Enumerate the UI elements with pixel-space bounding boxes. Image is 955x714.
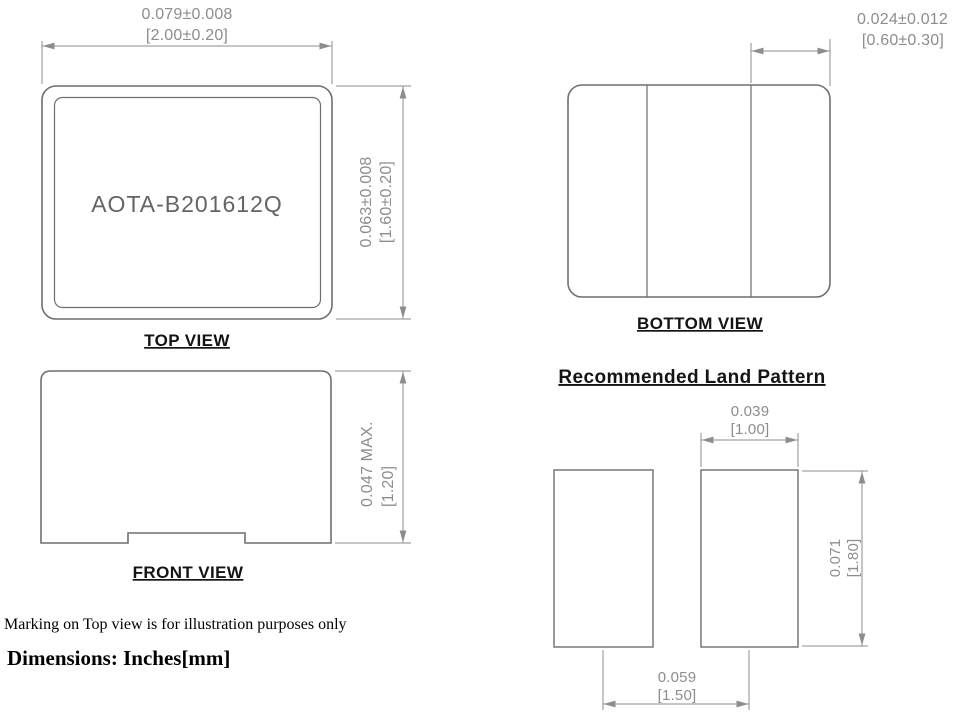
top-view: AOTA-B201612Q TOP VIEW 0.079±0.008 [2.00…	[42, 6, 411, 350]
top-width-dim-mm: [2.00±0.20]	[146, 27, 228, 44]
land-pad-right	[701, 470, 798, 647]
terminal-dim-mm: [0.60±0.30]	[862, 32, 944, 49]
front-height-dim-mm: [1.20]	[380, 466, 397, 507]
datasheet-drawing-page: AOTA-B201612Q TOP VIEW 0.079±0.008 [2.00…	[0, 0, 955, 714]
bottom-view-label: BOTTOM VIEW	[637, 314, 763, 333]
top-view-label: TOP VIEW	[144, 331, 230, 350]
marking-note: Marking on Top view is for illustration …	[4, 616, 347, 633]
pad-height-dim-inch: 0.071	[827, 539, 844, 578]
land-pattern-title: Recommended Land Pattern	[558, 367, 825, 388]
terminal-dim-inch: 0.024±0.012	[857, 11, 948, 28]
pad-width-dim-mm: [1.00]	[731, 421, 770, 438]
notes: Marking on Top view is for illustration …	[4, 616, 347, 670]
pad-pitch-dim-inch: 0.059	[658, 669, 697, 686]
pad-pitch-dim-mm: [1.50]	[658, 687, 697, 704]
front-view-outline	[41, 371, 331, 543]
units-note: Dimensions: Inches[mm]	[7, 646, 230, 670]
top-width-dim-inch: 0.079±0.008	[141, 6, 232, 23]
pad-width-dim-inch: 0.039	[731, 403, 770, 420]
top-height-dim-mm: [1.60±0.20]	[378, 161, 395, 243]
front-view-label: FRONT VIEW	[133, 563, 244, 582]
bottom-view: BOTTOM VIEW 0.024±0.012 [0.60±0.30]	[568, 11, 948, 333]
front-height-dim-inch: 0.047 MAX.	[359, 421, 376, 507]
front-view: FRONT VIEW 0.047 MAX. [1.20]	[41, 371, 411, 582]
mechanical-drawing: AOTA-B201612Q TOP VIEW 0.079±0.008 [2.00…	[0, 0, 955, 714]
pad-height-dim-mm: [1.80]	[845, 539, 862, 578]
land-pad-left	[554, 470, 653, 647]
bottom-view-outline	[568, 85, 830, 297]
part-marking: AOTA-B201612Q	[91, 191, 283, 217]
top-height-dim-inch: 0.063±0.008	[358, 156, 375, 247]
land-pattern: Recommended Land Pattern 0.039 [1.00] 0.…	[554, 367, 868, 710]
